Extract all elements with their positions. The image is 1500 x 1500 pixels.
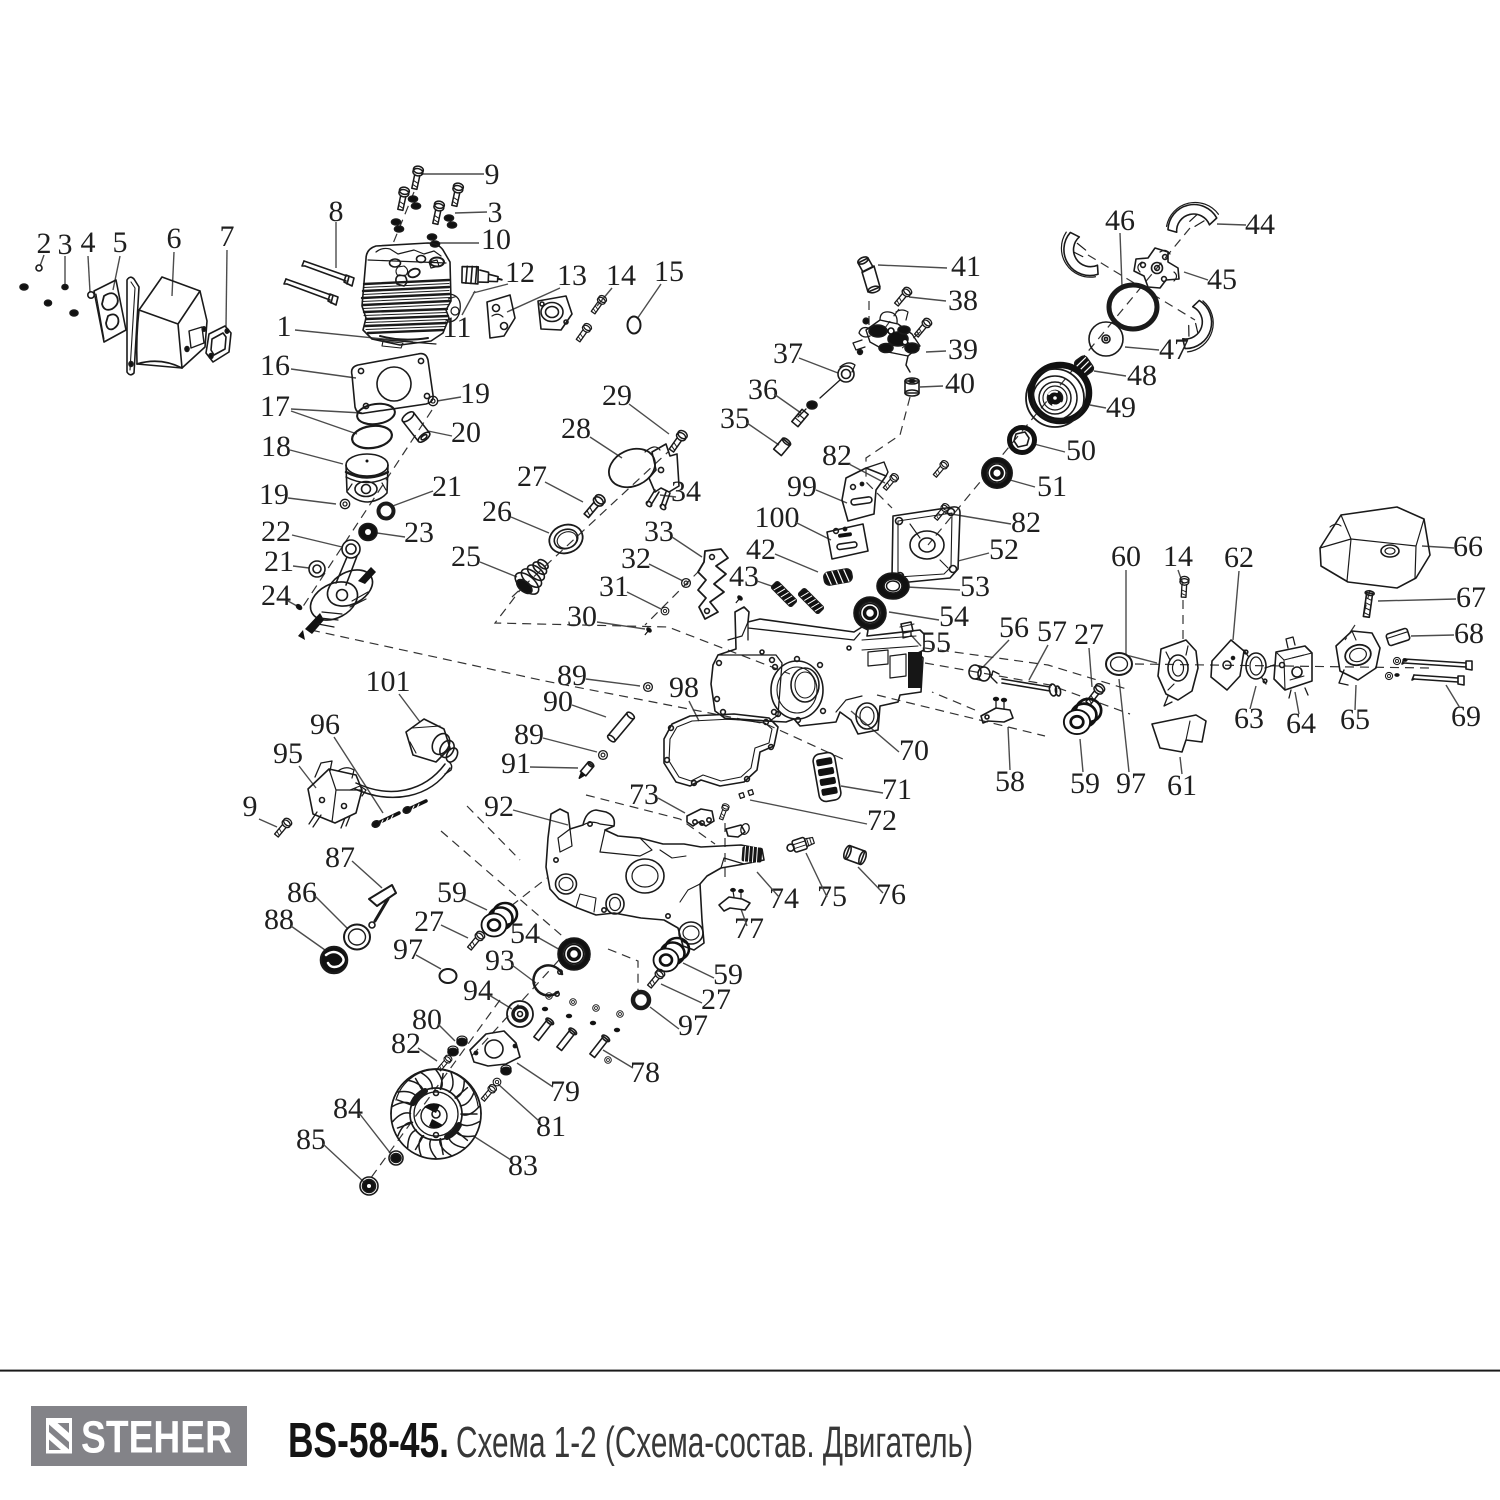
svg-text:30: 30: [567, 600, 597, 633]
svg-text:73: 73: [629, 778, 659, 811]
svg-text:91: 91: [501, 747, 531, 780]
svg-text:71: 71: [882, 773, 912, 806]
svg-text:Схема 1-2 (Схема-состав. Двига: Схема 1-2 (Схема-состав. Двигатель): [456, 1418, 973, 1467]
svg-text:101: 101: [366, 665, 411, 698]
svg-text:21: 21: [264, 545, 294, 578]
svg-text:63: 63: [1234, 702, 1264, 735]
svg-text:82: 82: [822, 439, 852, 472]
svg-text:99: 99: [787, 470, 817, 503]
svg-text:6: 6: [167, 222, 182, 255]
svg-text:59: 59: [1070, 767, 1100, 800]
svg-text:92: 92: [484, 790, 514, 823]
svg-text:37: 37: [773, 337, 803, 370]
svg-text:9: 9: [243, 790, 258, 823]
svg-text:18: 18: [261, 430, 291, 463]
svg-text:41: 41: [951, 250, 981, 283]
svg-text:78: 78: [630, 1056, 660, 1089]
svg-text:17: 17: [260, 390, 290, 423]
svg-text:77: 77: [734, 912, 764, 945]
svg-text:31: 31: [599, 570, 629, 603]
svg-text:14: 14: [1163, 540, 1193, 573]
svg-text:43: 43: [729, 560, 759, 593]
svg-text:96: 96: [310, 708, 340, 741]
svg-text:97: 97: [393, 933, 423, 966]
svg-text:21: 21: [432, 470, 462, 503]
svg-text:64: 64: [1286, 707, 1316, 740]
svg-text:45: 45: [1207, 263, 1237, 296]
svg-text:12: 12: [505, 256, 535, 289]
svg-text:35: 35: [720, 402, 750, 435]
svg-text:57: 57: [1037, 615, 1067, 648]
svg-text:5: 5: [113, 226, 128, 259]
svg-text:49: 49: [1106, 391, 1136, 424]
svg-text:83: 83: [508, 1149, 538, 1182]
svg-text:74: 74: [769, 882, 799, 915]
svg-text:84: 84: [333, 1092, 363, 1125]
svg-text:27: 27: [1074, 618, 1104, 651]
svg-text:22: 22: [261, 515, 291, 548]
svg-text:68: 68: [1454, 617, 1484, 650]
svg-text:95: 95: [273, 737, 303, 770]
svg-text:90: 90: [543, 685, 573, 718]
svg-text:STEHER: STEHER: [81, 1412, 232, 1463]
svg-text:85: 85: [296, 1123, 326, 1156]
svg-text:51: 51: [1037, 470, 1067, 503]
svg-text:56: 56: [999, 611, 1029, 644]
svg-text:20: 20: [451, 416, 481, 449]
svg-text:60: 60: [1111, 540, 1141, 573]
svg-text:87: 87: [325, 841, 355, 874]
svg-text:66: 66: [1453, 530, 1483, 563]
svg-text:52: 52: [989, 533, 1019, 566]
svg-text:26: 26: [482, 495, 512, 528]
svg-text:46: 46: [1105, 204, 1135, 237]
svg-text:62: 62: [1224, 541, 1254, 574]
svg-text:44: 44: [1245, 208, 1275, 241]
svg-text:48: 48: [1127, 359, 1157, 392]
svg-text:47: 47: [1159, 333, 1189, 366]
svg-text:28: 28: [561, 412, 591, 445]
svg-text:23: 23: [404, 516, 434, 549]
svg-text:97: 97: [1116, 767, 1146, 800]
svg-text:50: 50: [1066, 434, 1096, 467]
svg-text:98: 98: [669, 671, 699, 704]
svg-text:55: 55: [921, 626, 951, 659]
svg-text:7: 7: [220, 220, 235, 253]
svg-text:72: 72: [867, 804, 897, 837]
svg-text:29: 29: [602, 379, 632, 412]
svg-text:67: 67: [1456, 581, 1486, 614]
svg-text:39: 39: [948, 333, 978, 366]
svg-text:15: 15: [654, 255, 684, 288]
svg-text:76: 76: [876, 878, 906, 911]
svg-text:70: 70: [899, 734, 929, 767]
svg-text:34: 34: [671, 475, 701, 508]
svg-text:13: 13: [557, 259, 587, 292]
svg-text:27: 27: [517, 460, 547, 493]
svg-text:4: 4: [81, 226, 96, 259]
svg-text:36: 36: [748, 373, 778, 406]
svg-text:38: 38: [948, 284, 978, 317]
svg-text:79: 79: [550, 1075, 580, 1108]
svg-text:100: 100: [755, 501, 800, 534]
svg-text:9: 9: [485, 158, 500, 191]
svg-text:88: 88: [264, 903, 294, 936]
svg-text:25: 25: [451, 540, 481, 573]
svg-text:1: 1: [277, 310, 292, 343]
svg-text:69: 69: [1451, 700, 1481, 733]
svg-text:19: 19: [460, 377, 490, 410]
svg-text:93: 93: [485, 944, 515, 977]
svg-text:81: 81: [536, 1110, 566, 1143]
svg-text:82: 82: [391, 1027, 421, 1060]
svg-text:53: 53: [960, 570, 990, 603]
svg-text:24: 24: [261, 579, 291, 612]
svg-text:40: 40: [945, 367, 975, 400]
svg-text:94: 94: [463, 974, 493, 1007]
svg-text:14: 14: [606, 259, 636, 292]
svg-text:16: 16: [260, 349, 290, 382]
svg-text:19: 19: [259, 478, 289, 511]
svg-text:BS-58-45.: BS-58-45.: [288, 1414, 449, 1468]
svg-text:10: 10: [481, 223, 511, 256]
svg-text:97: 97: [678, 1009, 708, 1042]
